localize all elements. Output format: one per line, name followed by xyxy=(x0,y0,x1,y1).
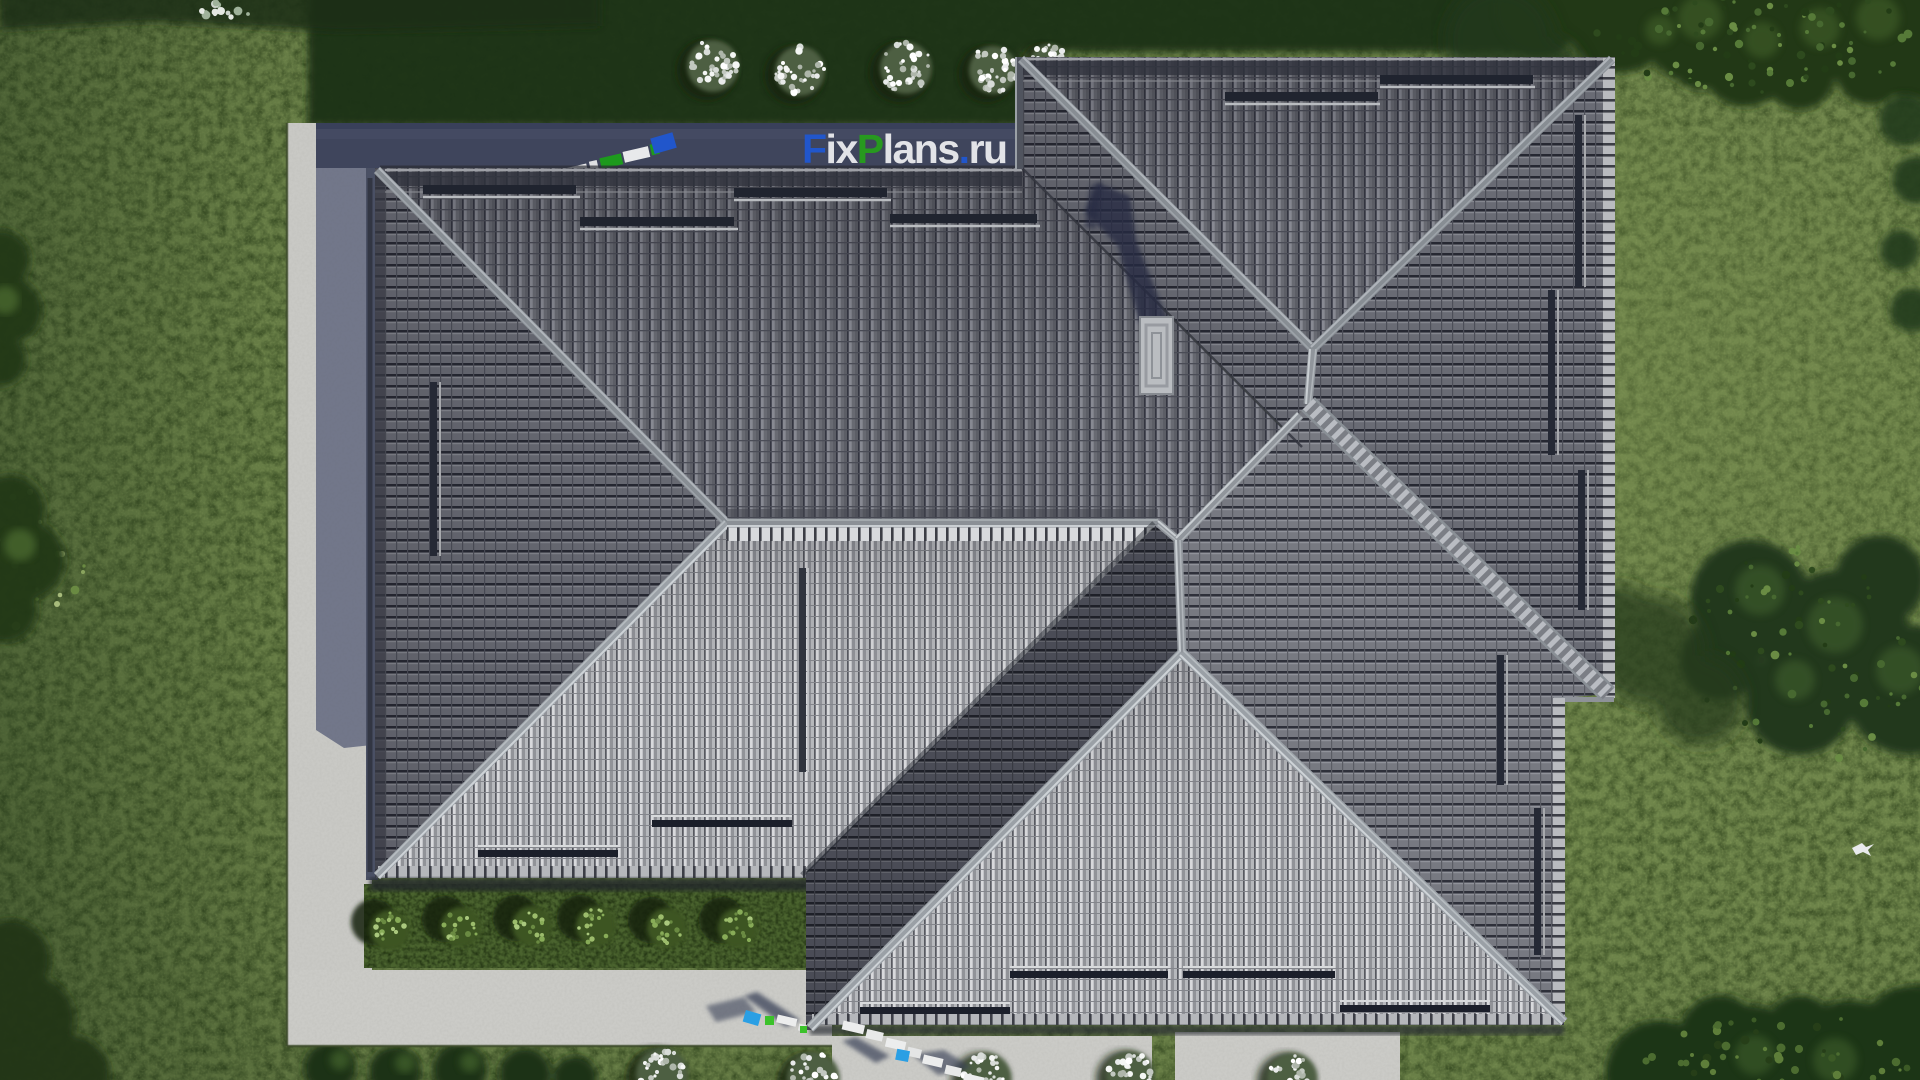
svg-text:FixPlans.ru: FixPlans.ru xyxy=(802,126,1007,172)
